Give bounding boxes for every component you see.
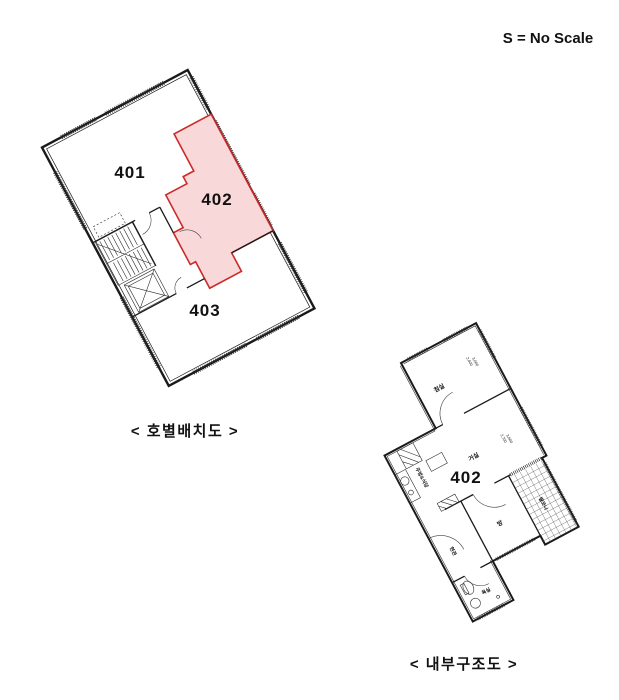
- building-outline: [42, 70, 314, 386]
- unit-401-label: 401: [114, 163, 145, 182]
- living-room-label: 거실: [467, 451, 481, 463]
- shoe-cabinet: [437, 494, 459, 511]
- door-arcs-402: [373, 392, 540, 598]
- floor-plan-canvas: 401 402 403 < 호별배치도 > S = No Scale: [0, 0, 619, 700]
- interior-walls-402: [385, 388, 584, 591]
- kitchen-dining-label: 주방&식당: [414, 466, 431, 489]
- elevator: [124, 269, 169, 312]
- unit-403-label: 403: [189, 301, 220, 320]
- internal-unit-402-label: 402: [450, 468, 481, 487]
- bedroom-label: 침실: [432, 382, 446, 394]
- internal-structure-caption: < 내부구조도 >: [410, 656, 518, 673]
- entrance-label: 현관: [448, 546, 459, 558]
- unit-layout-caption: < 호별배치도 >: [131, 422, 239, 440]
- floor-plan-page: { "scale_note": { "text": "S = No Scale"…: [0, 0, 619, 700]
- scale-note: S = No Scale: [503, 30, 593, 47]
- unit-layout-diagram: [42, 70, 314, 386]
- room-label: 방: [496, 518, 505, 528]
- unit-402-label: 402: [201, 190, 232, 209]
- perimeter-window-hatching: [42, 70, 314, 386]
- bathroom-label: 욕실: [480, 586, 492, 597]
